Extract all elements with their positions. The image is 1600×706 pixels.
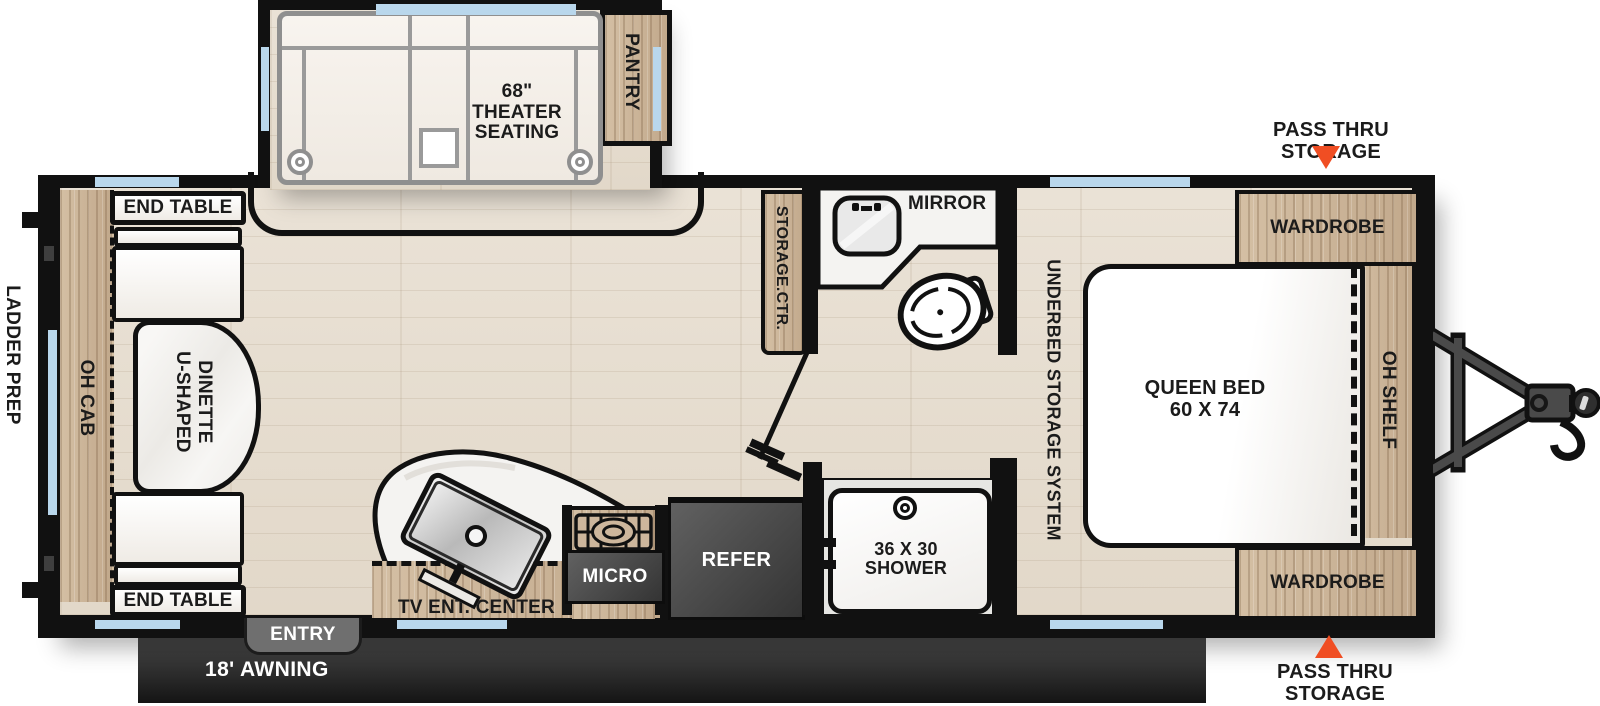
rear-bumper-stub (22, 582, 39, 598)
cupholder-icon (567, 149, 593, 175)
shower-drain-icon (893, 496, 917, 520)
window (1050, 620, 1163, 629)
cupholder-icon (287, 149, 313, 175)
oh-cab-label: OH CAB (75, 360, 97, 437)
arrow-down-icon (1312, 146, 1340, 169)
oh-shelf-label: OH SHELF (1377, 351, 1399, 449)
toilet-icon (891, 264, 996, 356)
dinette-bench-bottom (112, 492, 244, 566)
rear-handle-icon (44, 246, 54, 261)
shower-label: 36 X 30 SHOWER (848, 540, 964, 579)
rear-bumper-stub (22, 212, 39, 228)
microwave: MICRO (565, 550, 665, 604)
shower-door-hinge (820, 538, 836, 547)
wardrobe-top-label: WARDROBE (1270, 218, 1385, 239)
end-table-top: END TABLE (110, 191, 246, 225)
window (95, 177, 179, 187)
wardrobe-bottom-label: WARDROBE (1270, 573, 1385, 594)
micro-label: MICRO (582, 566, 647, 588)
bed-head-dashed-line (1351, 266, 1357, 536)
theater-seating-sofa: 68" THEATER SEATING (277, 11, 603, 185)
awning-label: 18' AWNING (205, 658, 329, 682)
storage-ctr-label: STORAGE.CTR. (772, 206, 790, 330)
pass-thru-bottom-label: PASS THRU STORAGE (1235, 662, 1435, 705)
floorplan-canvas: PANTRY 68" THEATER SEATING OH CAB END TA… (0, 0, 1600, 706)
stove-cooktop-icon (574, 513, 653, 551)
cupholder-inner (575, 157, 585, 167)
window (95, 620, 180, 629)
drain-inner (900, 503, 910, 513)
theater-seating-label: 68" THEATER SEATING (447, 82, 587, 144)
window (376, 4, 576, 15)
window (397, 620, 507, 629)
shower-door-hinge (820, 560, 836, 569)
pantry-label: PANTRY (620, 33, 642, 111)
entry-door-tab: ENTRY (244, 618, 362, 655)
underbed-storage-label: UNDERBED STORAGE SYSTEM (1043, 259, 1064, 541)
wardrobe-top: WARDROBE (1235, 190, 1420, 266)
dinette-label: U-SHAPED DINETTE (171, 351, 215, 453)
end-table-bottom-label: END TABLE (123, 591, 232, 612)
dinette-bench-cushion (114, 564, 242, 586)
end-table-bottom: END TABLE (110, 585, 246, 617)
refer-label: REFER (702, 549, 772, 572)
refrigerator: REFER (668, 497, 805, 620)
ladder-prep-label: LADDER PREP (1, 285, 23, 424)
arrow-up-icon (1315, 635, 1343, 658)
bath-sink-icon (835, 198, 899, 254)
queen-bed-label: QUEEN BED 60 X 74 (1115, 378, 1295, 421)
dinette-bench-cushion (114, 227, 242, 247)
mirror-label: MIRROR (908, 194, 986, 215)
shower-wall-right (990, 458, 1017, 615)
window (48, 330, 57, 515)
end-table-top-label: END TABLE (123, 198, 232, 219)
window (1050, 177, 1190, 187)
wardrobe-bottom: WARDROBE (1235, 546, 1420, 620)
cupholder-inner (295, 157, 305, 167)
window (653, 47, 661, 131)
entry-label: ENTRY (270, 624, 336, 646)
dinette-bench-top (112, 246, 244, 322)
rear-handle-icon (44, 556, 54, 571)
window (261, 47, 269, 131)
trailer-hitch-icon (1433, 290, 1600, 505)
